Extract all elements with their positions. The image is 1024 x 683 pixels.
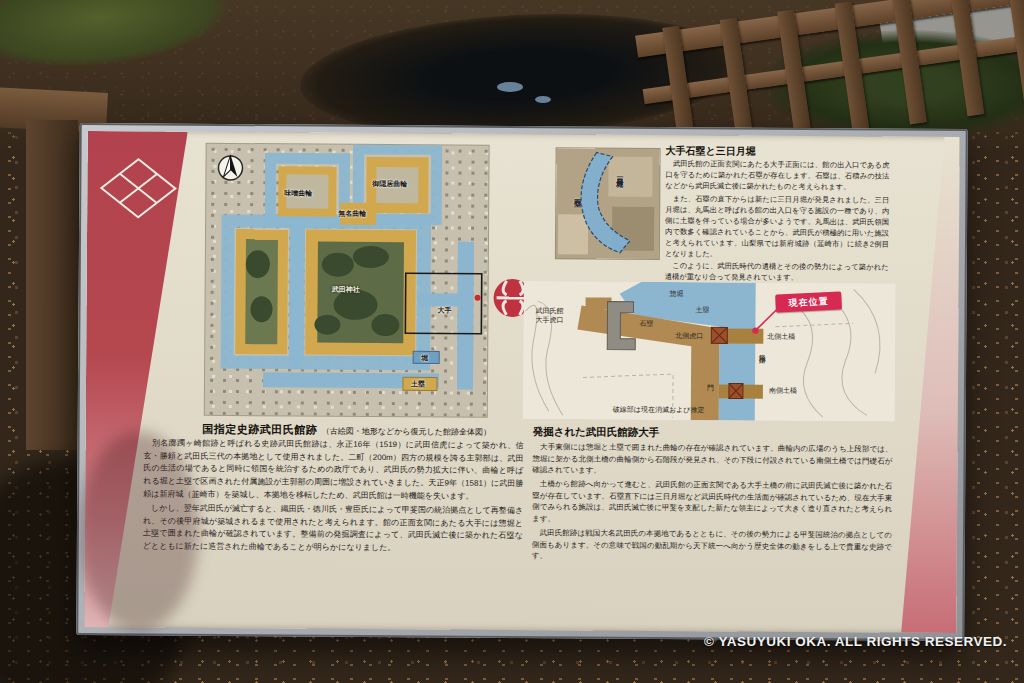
water-glint bbox=[497, 82, 523, 92]
diagram-label-kaji-koji: 鍛冶小路 bbox=[757, 349, 766, 353]
photo-label-mikazukibori: 三日月堀 bbox=[614, 171, 624, 175]
map-legend-moat: 堀 bbox=[421, 353, 428, 363]
map-caption: 国指定史跡武田氏館跡 （古絵図・地形などから復元した館跡全体図） bbox=[182, 419, 512, 439]
aerial-site-map: 味噌曲輪 御隠居曲輪 無名曲輪 武田神社 大手 堀 土塁 bbox=[205, 144, 489, 417]
diagram-label-kita-dobashi: 北側土橋 bbox=[767, 333, 795, 342]
railing-post bbox=[1007, 0, 1024, 108]
diagram-label-sekirui: 石塁 bbox=[639, 320, 653, 329]
diagram-label-minami-dobashi: 南側土橋 bbox=[769, 387, 797, 396]
map-label-goinkyo-kuruwa: 御隠居曲輪 bbox=[372, 179, 407, 189]
rt-paragraph-2: また、石塁の直下からは新たに三日月堀が発見されました。三日月堀は、丸馬出と呼ばれ… bbox=[665, 194, 889, 261]
information-board: 味噌曲輪 御隠居曲輪 無名曲輪 武田神社 大手 堀 土塁 国指定史跡武田氏館跡 … bbox=[76, 123, 968, 641]
outdoor-photo-scene: 味噌曲輪 御隠居曲輪 無名曲輪 武田神社 大手 堀 土塁 国指定史跡武田氏館跡 … bbox=[0, 0, 1024, 683]
mikazukibori-photo-graphic bbox=[556, 148, 660, 259]
diagram-label-yakata: 武田氏館 大手虎口 bbox=[535, 307, 563, 325]
diagram-label-kita-koguchi: 北側虎口 bbox=[675, 332, 703, 341]
rb-paragraph-3: 武田氏館跡は戦国大名武田氏の本拠地であるとともに、その後の勢力による甲斐国統治の… bbox=[532, 527, 892, 565]
map-label-mumei-kuruwa: 無名曲輪 bbox=[338, 209, 366, 219]
main-paragraph-1: 別名躑躅ヶ崎館跡と呼ばれる史跡武田氏館跡は、永正16年（1519）に武田信虎によ… bbox=[143, 437, 523, 503]
takeda-crest-icon bbox=[99, 157, 177, 220]
map-legend-dorui: 土塁 bbox=[411, 379, 425, 389]
section-heading-ote-sekirui: 大手石塁と三日月堀 bbox=[666, 144, 756, 159]
ote-plan-diagram: 武田氏館 大手虎口 石塁 惣堀 土塁 北側虎口 北側土橋 門 南側土橋 破線部は… bbox=[523, 281, 896, 422]
main-description: 別名躑躅ヶ崎館跡と呼ばれる史跡武田氏館跡は、永正16年（1519）に武田信虎によ… bbox=[143, 437, 524, 555]
compass-icon bbox=[218, 155, 242, 180]
map-label-miso-kuruwa: 味噌曲輪 bbox=[284, 188, 312, 198]
diagram-label-mon: 門 bbox=[707, 384, 714, 393]
rt-paragraph-1: 武田氏館の正面玄関にあたる大手正面には、館の出入口である虎口を守るために築かれた… bbox=[665, 159, 889, 193]
mikazukibori-photo: 石塁 三日月堀 bbox=[556, 148, 660, 259]
current-location-badge: 現在位置 bbox=[775, 292, 842, 313]
map-label-takeda-shrine: 武田神社 bbox=[332, 285, 360, 295]
hakkutsu-description: 大手東側には惣堀と土塁で囲まれた曲輪の存在が確認されています。曲輪内の広場のうち… bbox=[532, 441, 893, 564]
section-heading-hakkutsu: 発掘された武田氏館跡大手 bbox=[533, 425, 660, 440]
board-face: 味噌曲輪 御隠居曲輪 無名曲輪 武田神社 大手 堀 土塁 国指定史跡武田氏館跡 … bbox=[84, 131, 959, 633]
rb-paragraph-2: 土橋から館跡へ向かって進むと、武田氏館の正面玄関である大手土橋の前に武田氏滅亡後… bbox=[532, 478, 892, 527]
water-glint bbox=[535, 96, 551, 103]
shadow-on-board bbox=[78, 431, 199, 632]
diagram-label-dorui: 土塁 bbox=[695, 306, 709, 315]
wooden-post bbox=[26, 120, 78, 450]
aerial-map-graphic bbox=[205, 144, 489, 417]
map-caption-sub: （古絵図・地形などから復元した館跡全体図） bbox=[322, 427, 491, 437]
diagram-note: 破線部は現在消滅および推定 bbox=[613, 406, 705, 415]
map-caption-title: 国指定史跡武田氏館跡 bbox=[202, 423, 317, 436]
rb-paragraph-1: 大手東側には惣堀と土塁で囲まれた曲輪の存在が確認されています。曲輪内の広場のうち… bbox=[532, 441, 892, 479]
photo-label-sekirui: 石塁 bbox=[572, 192, 582, 194]
ote-sekirui-description: 武田氏館の正面玄関にあたる大手正面には、館の出入口である虎口を守るために築かれた… bbox=[665, 159, 890, 285]
diagram-label-sobori: 惣堀 bbox=[670, 290, 684, 299]
copyright-watermark: © YASUYUKI OKA. ALL RIGHTS RESERVED. bbox=[704, 634, 1007, 649]
map-label-ote: 大手 bbox=[437, 305, 451, 315]
main-paragraph-2: しかし、翌年武田氏が滅亡すると、織田氏・徳川氏・豊臣氏によって甲斐国の統治拠点と… bbox=[143, 502, 523, 555]
